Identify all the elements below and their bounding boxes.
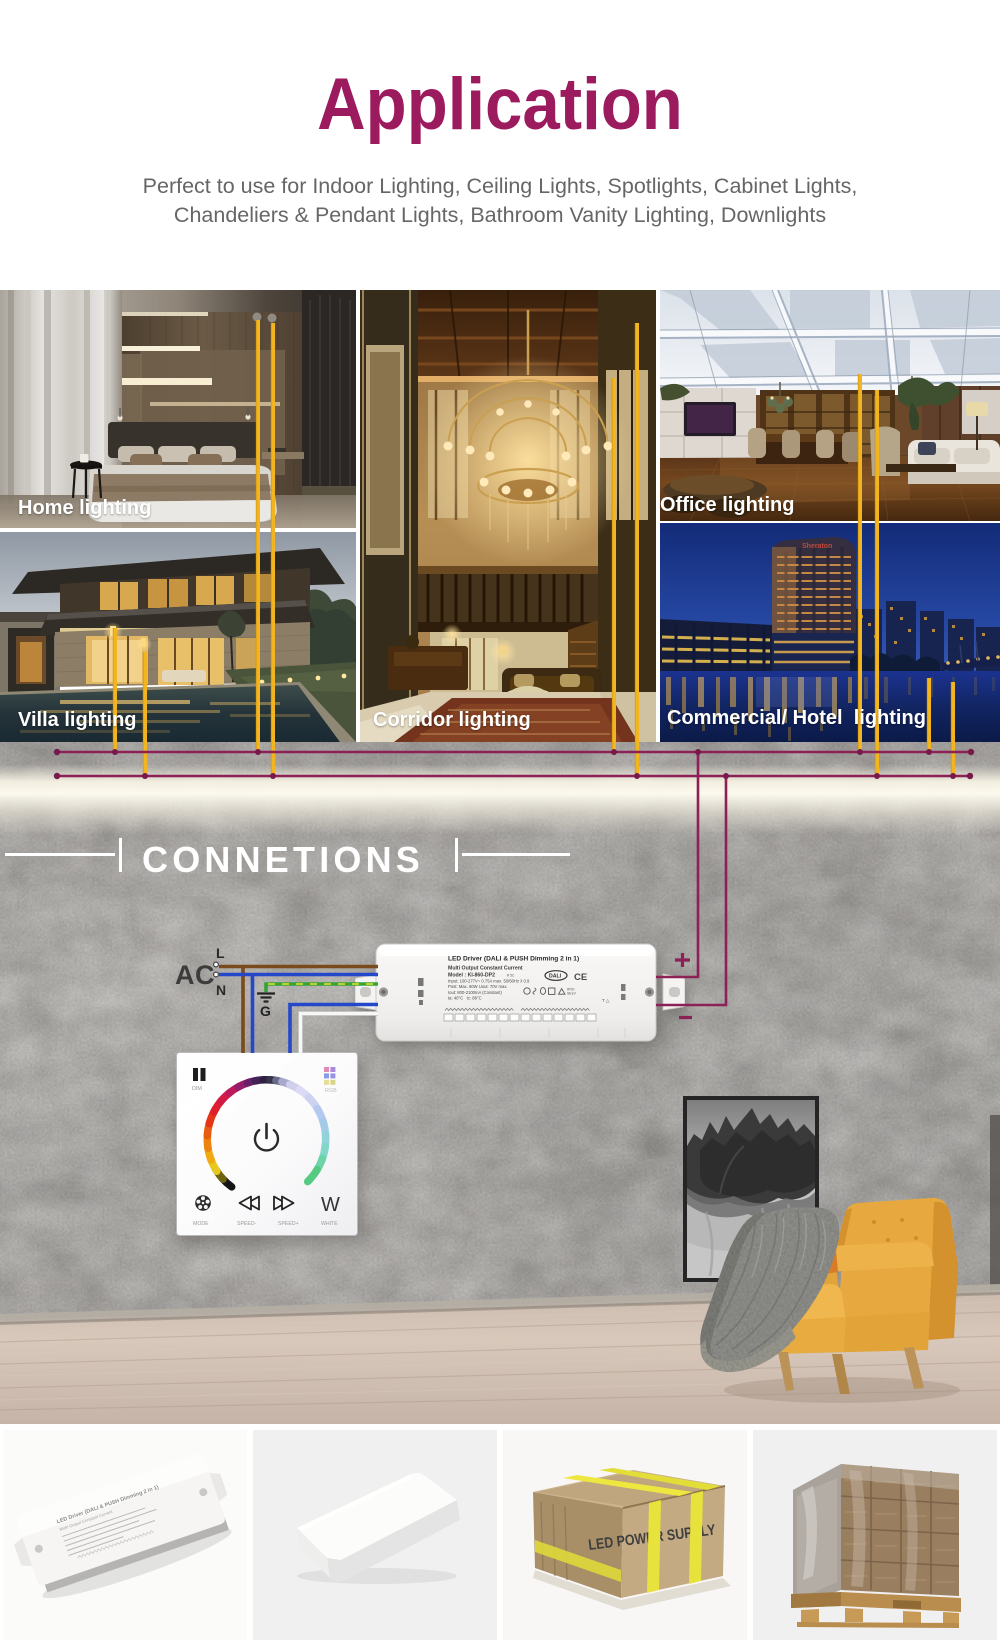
svg-text:G: G: [260, 1003, 271, 1019]
svg-text:AC: AC: [175, 960, 215, 990]
svg-text:N: N: [216, 982, 226, 998]
svg-text:L: L: [216, 945, 225, 961]
